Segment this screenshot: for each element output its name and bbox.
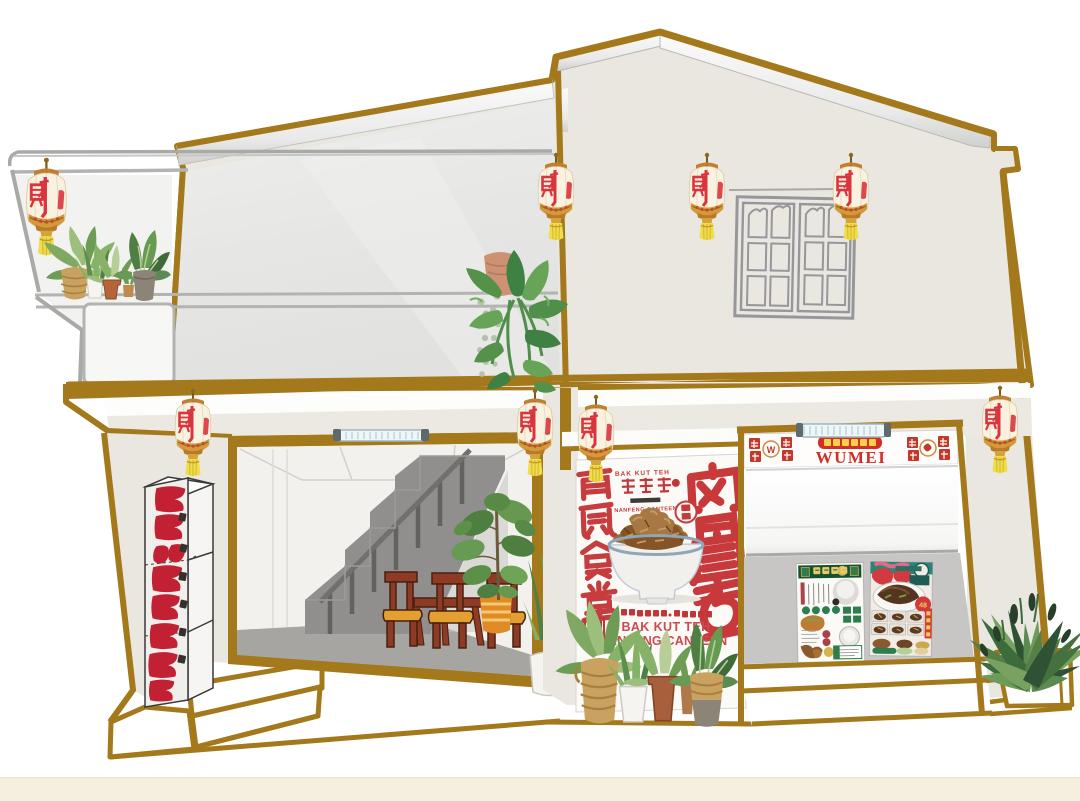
- svg-text:WUMEI: WUMEI: [816, 448, 887, 467]
- svg-text:48: 48: [919, 602, 927, 609]
- svg-text:W: W: [767, 445, 776, 455]
